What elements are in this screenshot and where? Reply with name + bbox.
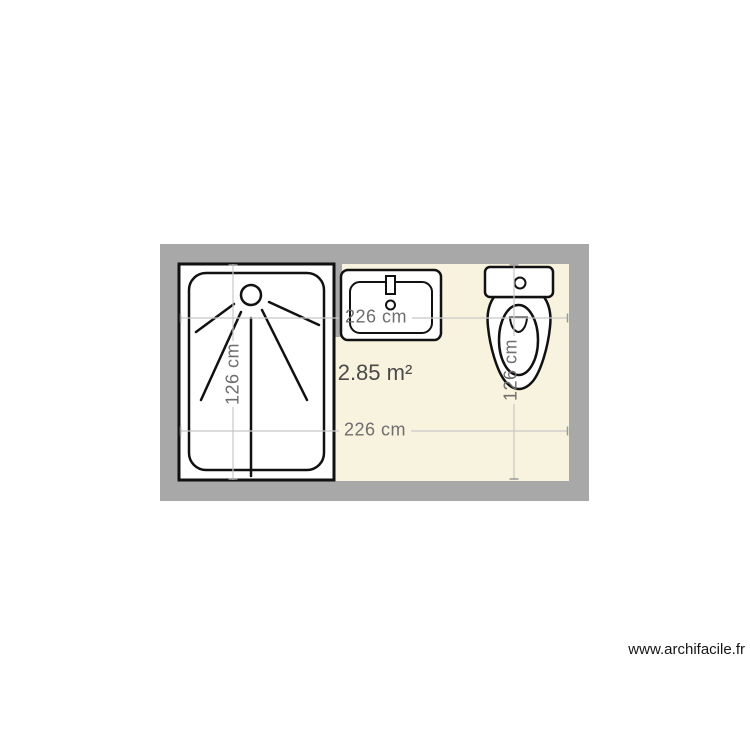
- shower[interactable]: [179, 264, 334, 480]
- toilet-flush-button-icon: [515, 278, 526, 289]
- washbasin[interactable]: [341, 270, 441, 340]
- dimension-label-right: 126 cm: [501, 339, 522, 401]
- archifacile-watermark: www.archifacile.fr: [628, 641, 745, 658]
- dimension-label-top: 226 cm: [345, 307, 407, 328]
- floorplan-canvas: 226 cm 226 cm 126 cm 126 cm 2.85 m² www.…: [0, 0, 750, 750]
- washbasin-faucet-icon: [386, 276, 395, 294]
- room-area-label: 2.85 m²: [338, 360, 413, 386]
- dimension-label-bottom: 226 cm: [344, 420, 406, 441]
- shower-head-icon: [241, 285, 261, 305]
- dimension-label-left: 126 cm: [223, 343, 244, 405]
